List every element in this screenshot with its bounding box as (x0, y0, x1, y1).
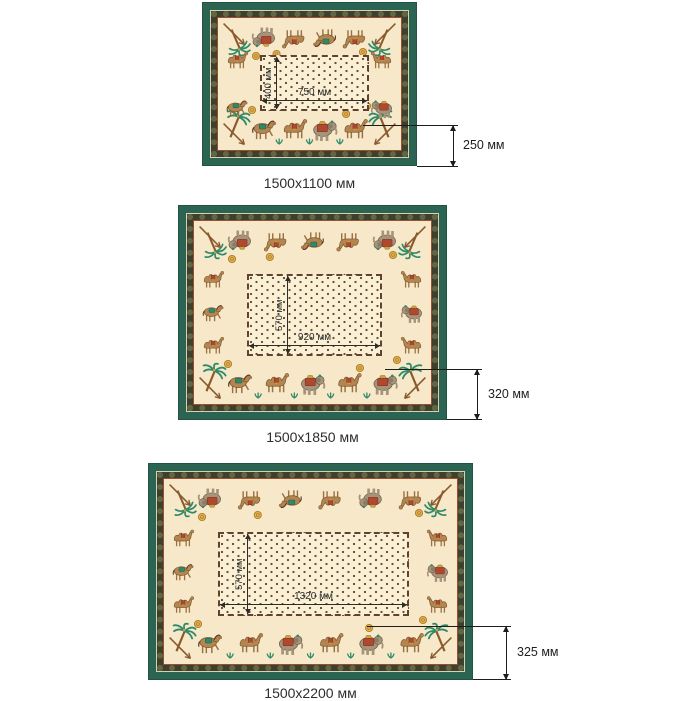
annotation-arrow-line (477, 369, 478, 420)
cloth-field: 400 мм 750 мм (218, 18, 401, 150)
size-caption: 1500x1850 мм (178, 429, 447, 445)
arrow-down-icon (450, 161, 456, 167)
table-height-label: 570 мм (233, 534, 246, 614)
table-width-label: 920 мм (249, 332, 380, 343)
arrow-up-icon (474, 369, 480, 375)
size-caption: 1500x2200 мм (148, 685, 473, 701)
table-top-outline: 570 мм 920 мм (247, 274, 382, 356)
table-top-outline: 400 мм 750 мм (260, 55, 369, 111)
arrow-up-icon (503, 626, 509, 632)
width-dimension-line (262, 100, 367, 101)
cloth-field: 570 мм 1320 мм (164, 479, 457, 664)
table-width-label: 750 мм (262, 87, 367, 98)
annotation-top-line (363, 125, 458, 126)
annotation-top-line (367, 626, 511, 627)
annotation-top-line (385, 369, 482, 370)
arrow-down-icon (503, 674, 509, 680)
border-drop-label: 320 мм (488, 387, 530, 401)
width-dimension-line (220, 604, 407, 605)
annotation-arrow-line (506, 626, 507, 680)
cloth-field: 570 мм 920 мм (194, 221, 431, 404)
arrow-up-icon (450, 125, 456, 131)
border-drop-label: 250 мм (463, 138, 505, 152)
tablecloth-preview-large: 570 мм 1320 мм (148, 463, 473, 680)
size-caption: 1500x1100 мм (202, 175, 417, 191)
tablecloth-size-chart: 400 мм 750 мм 250 мм 1500x1100 мм 57 (0, 0, 700, 700)
border-drop-label: 325 мм (517, 645, 559, 659)
tablecloth-preview-medium: 570 мм 920 мм (178, 205, 447, 420)
height-dimension-line (247, 534, 248, 614)
height-dimension-line (276, 57, 277, 109)
tablecloth-preview-small: 400 мм 750 мм (202, 2, 417, 166)
arrow-down-icon (474, 414, 480, 420)
table-height-label: 400 мм (262, 57, 275, 109)
width-dimension-line (249, 345, 380, 346)
table-top-outline: 570 мм 1320 мм (218, 532, 409, 616)
table-width-label: 1320 мм (220, 591, 407, 602)
